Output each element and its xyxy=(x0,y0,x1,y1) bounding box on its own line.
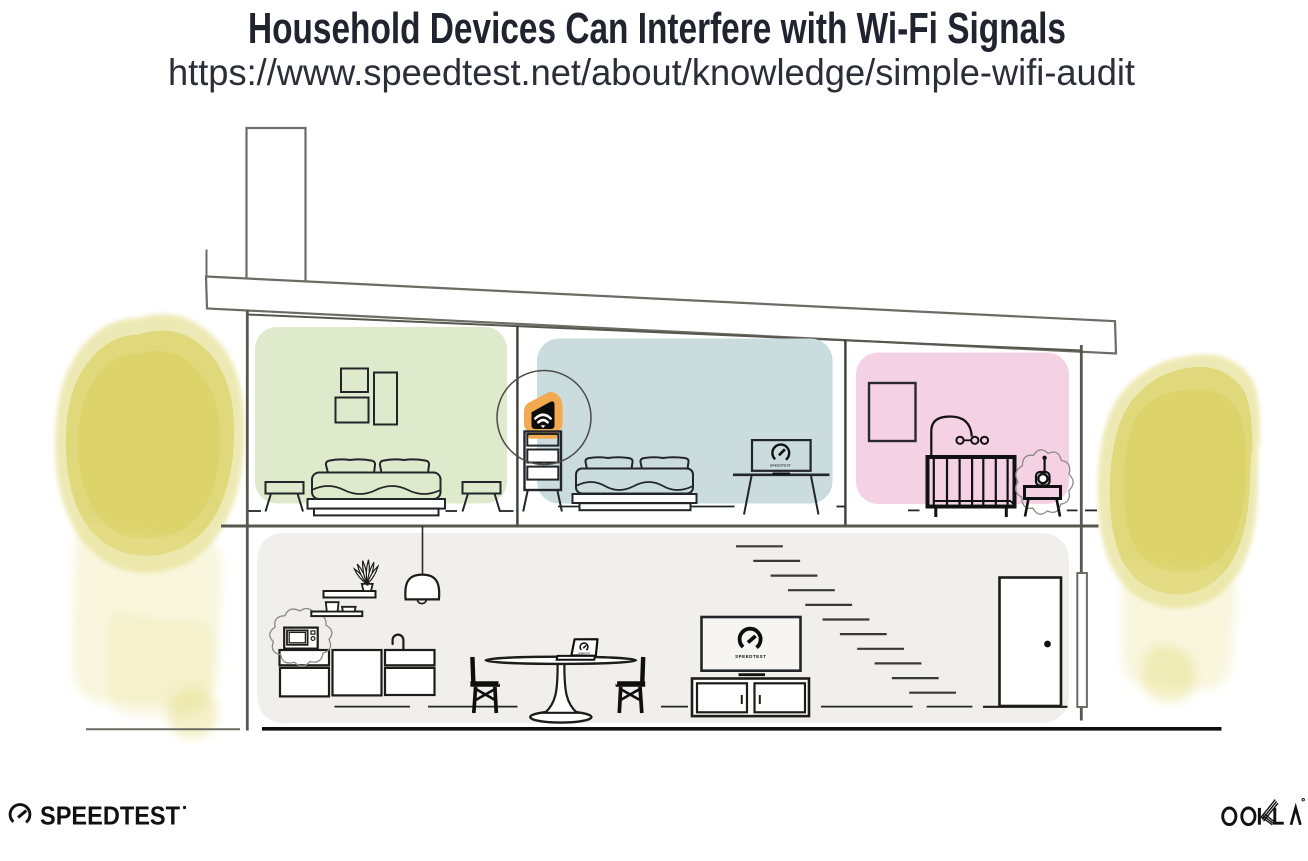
svg-text:SPEEDTEST: SPEEDTEST xyxy=(40,803,180,831)
svg-text:SPEEDTEST: SPEEDTEST xyxy=(735,654,766,659)
svg-text:Household Devices Can Interfer: Household Devices Can Interfere with Wi-… xyxy=(248,4,1066,53)
svg-text:SPEEDTEST: SPEEDTEST xyxy=(770,463,791,467)
svg-text:https://www.speedtest.net/abou: https://www.speedtest.net/about/knowledg… xyxy=(168,52,1136,93)
